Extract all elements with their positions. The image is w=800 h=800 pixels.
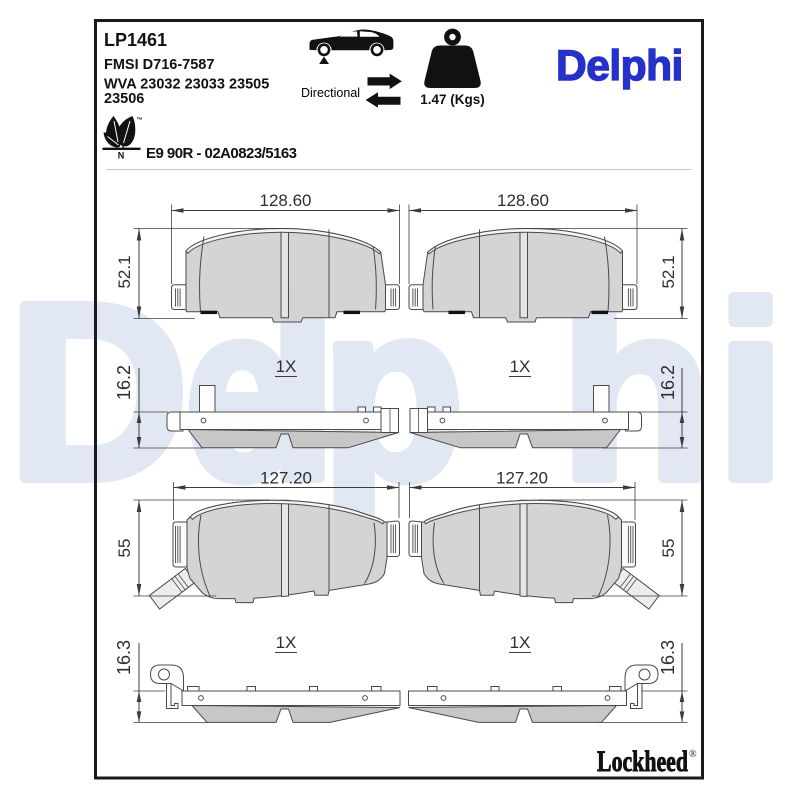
svg-text:1X: 1X bbox=[510, 633, 531, 652]
svg-text:™: ™ bbox=[137, 117, 144, 124]
svg-text:®: ® bbox=[689, 749, 697, 760]
svg-text:127.20: 127.20 bbox=[260, 469, 312, 488]
svg-text:N: N bbox=[118, 151, 125, 161]
svg-text:1X: 1X bbox=[276, 357, 297, 376]
svg-text:16.2: 16.2 bbox=[658, 365, 678, 400]
svg-text:16.3: 16.3 bbox=[114, 640, 134, 675]
svg-text:LP1461: LP1461 bbox=[104, 30, 167, 50]
svg-text:16.3: 16.3 bbox=[658, 640, 678, 675]
svg-text:55: 55 bbox=[115, 539, 134, 558]
svg-text:1X: 1X bbox=[510, 357, 531, 376]
svg-text:Lockheed: Lockheed bbox=[597, 745, 688, 778]
svg-text:52.1: 52.1 bbox=[659, 255, 678, 288]
svg-text:128.60: 128.60 bbox=[497, 191, 549, 210]
svg-text:1.47 (Kgs): 1.47 (Kgs) bbox=[420, 92, 485, 107]
svg-text:128.60: 128.60 bbox=[260, 191, 312, 210]
svg-text:E9 90R - 02A0823/5163: E9 90R - 02A0823/5163 bbox=[146, 145, 297, 162]
svg-text:Delphi: Delphi bbox=[556, 43, 683, 90]
svg-text:55: 55 bbox=[659, 539, 678, 558]
svg-text:23506: 23506 bbox=[104, 91, 144, 107]
svg-text:16.2: 16.2 bbox=[114, 365, 134, 400]
svg-text:1X: 1X bbox=[276, 633, 297, 652]
svg-text:Directional: Directional bbox=[301, 86, 360, 100]
svg-text:127.20: 127.20 bbox=[496, 469, 548, 488]
svg-text:D: D bbox=[8, 252, 189, 531]
svg-text:FMSI D716-7587: FMSI D716-7587 bbox=[104, 57, 214, 73]
svg-text:i: i bbox=[716, 252, 785, 531]
svg-text:52.1: 52.1 bbox=[115, 255, 134, 288]
